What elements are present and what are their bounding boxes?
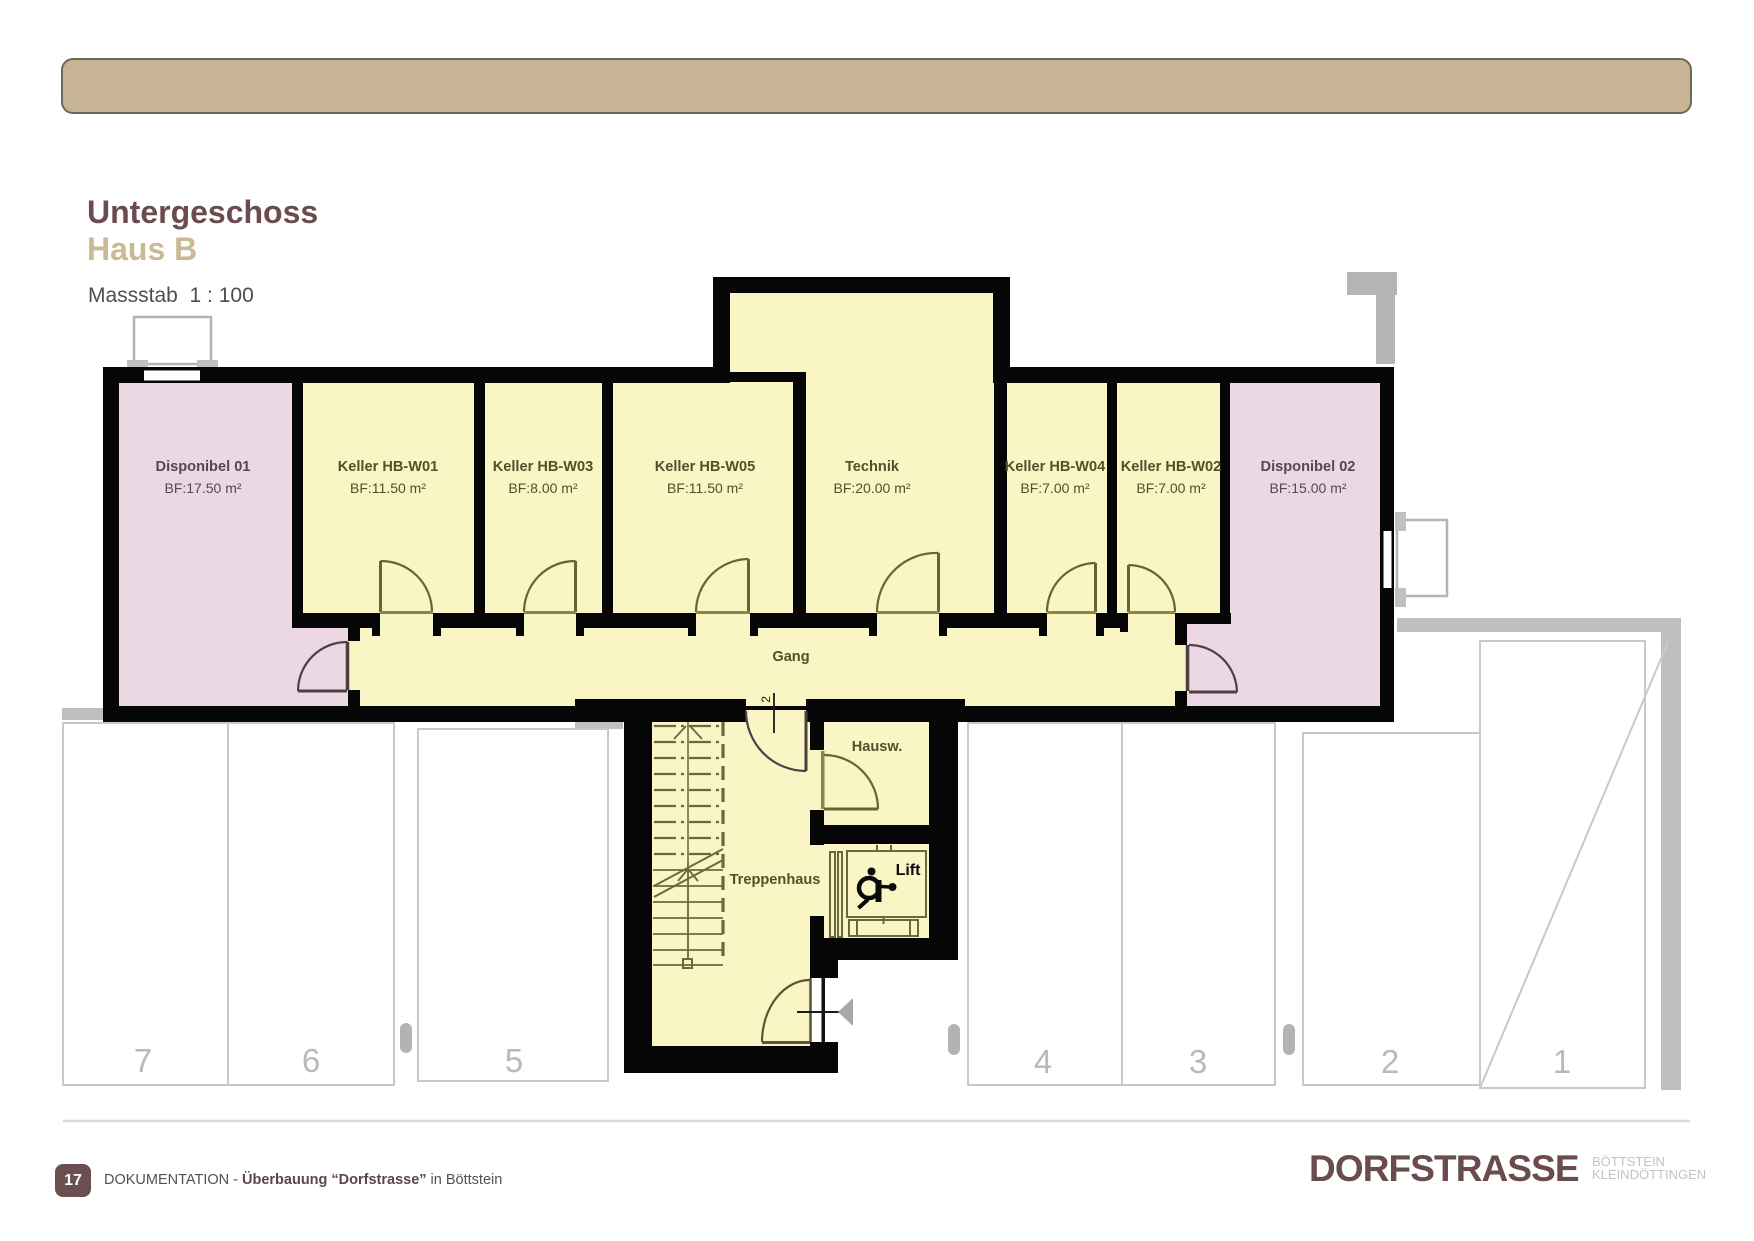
svg-text:Disponibel 02: Disponibel 02 <box>1261 459 1356 475</box>
svg-text:5: 5 <box>505 1042 523 1079</box>
svg-text:BF:11.50 m²: BF:11.50 m² <box>350 480 426 496</box>
svg-text:BF:17.50 m²: BF:17.50 m² <box>164 480 241 496</box>
svg-text:Treppenhaus: Treppenhaus <box>730 872 821 888</box>
svg-text:Gang: Gang <box>772 649 809 665</box>
svg-text:Technik: Technik <box>845 459 900 475</box>
svg-text:BF:7.00 m²: BF:7.00 m² <box>1020 480 1090 496</box>
svg-text:4: 4 <box>1034 1043 1052 1080</box>
svg-text:BF:15.00 m²: BF:15.00 m² <box>1269 480 1346 496</box>
svg-text:Keller HB-W04: Keller HB-W04 <box>1005 459 1106 475</box>
svg-text:BF:20.00 m²: BF:20.00 m² <box>833 480 910 496</box>
svg-text:1: 1 <box>1553 1043 1571 1080</box>
svg-text:6: 6 <box>302 1042 320 1079</box>
svg-text:BF:11.50 m²: BF:11.50 m² <box>667 480 743 496</box>
svg-text:2: 2 <box>759 696 773 703</box>
svg-text:2: 2 <box>1381 1043 1399 1080</box>
svg-text:Keller HB-W02: Keller HB-W02 <box>1121 459 1222 475</box>
svg-text:Keller HB-W03: Keller HB-W03 <box>493 459 594 475</box>
svg-text:3: 3 <box>1189 1043 1207 1080</box>
svg-text:7: 7 <box>134 1042 152 1079</box>
svg-text:Lift: Lift <box>896 862 922 879</box>
svg-text:BF:7.00 m²: BF:7.00 m² <box>1136 480 1206 496</box>
svg-text:Disponibel 01: Disponibel 01 <box>156 459 251 475</box>
svg-text:Keller HB-W05: Keller HB-W05 <box>655 459 756 475</box>
svg-text:BF:8.00 m²: BF:8.00 m² <box>508 480 578 496</box>
svg-text:Keller HB-W01: Keller HB-W01 <box>338 459 439 475</box>
svg-text:Hausw.: Hausw. <box>852 739 903 755</box>
